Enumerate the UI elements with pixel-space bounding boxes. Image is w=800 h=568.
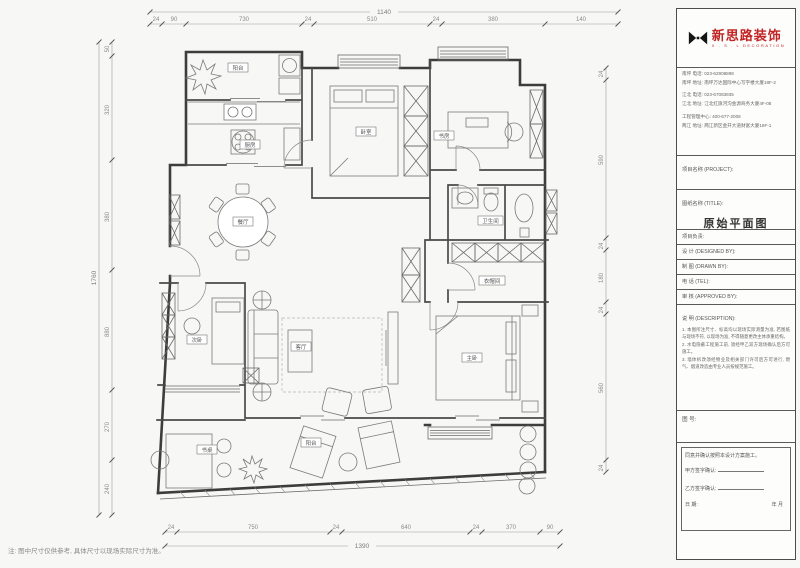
confirmation-section: 同意并确认按照本设计方案施工。 甲方签字确认: 乙方签字确认: 日 期: 年 月 [677,443,795,546]
tel-row: 电 话 (TEL): [677,275,795,290]
sheet-note: 注: 图中尺寸仅供参考, 具体尺寸以现场实际尺寸为准。 [8,545,165,555]
svg-text:90: 90 [171,17,178,23]
drawing-title-label: 图纸名称 (TITLE): [682,201,723,207]
svg-text:240: 240 [105,483,111,494]
lead-row: 项目负责: [677,230,795,245]
party-b-signature: 乙方签字确认: [685,483,787,492]
svg-text:140: 140 [576,17,587,23]
dimensions-right: 24 590 24 180 24 560 24 [599,66,609,475]
svg-text:270: 270 [105,421,111,432]
tag-dining: 餐厅 [233,217,253,226]
svg-text:24: 24 [599,306,605,313]
plant-icon [239,456,267,483]
svg-text:书房: 书房 [438,132,450,140]
svg-text:590: 590 [599,154,605,165]
svg-text:主卧: 主卧 [466,354,478,362]
svg-text:370: 370 [506,525,517,531]
svg-text:640: 640 [401,525,412,531]
description-note: 1. 本图所注尺寸、标高均以现场实际测量为准, 若图纸与现场不符, 以现场为准,… [682,327,790,340]
tag-master: 主卧 [462,353,482,362]
approve-row: 审 核 (APPROVED BY): [677,290,795,305]
ceiling-light-icon [253,291,271,401]
party-a-signature: 甲方签字确认: [685,465,787,474]
contact-section: 南坪 电话: 023-62908898 南坪 地址: 南坪万达国际中心写字楼大厦… [677,68,795,156]
svg-text:客厅: 客厅 [295,343,307,351]
tag-bedroom3: 次卧 [187,335,207,344]
svg-text:560: 560 [599,382,605,393]
contact-line: 南坪 电话: 023-62908898 [682,70,790,79]
dimensions-left: 50 320 380 880 270 240 1760 [91,40,115,518]
svg-text:24: 24 [333,525,340,531]
confirmation-statement: 同意并确认按照本设计方案施工。 [685,452,787,459]
svg-text:书桌: 书桌 [201,446,213,454]
svg-text:次卧: 次卧 [191,336,203,344]
title-block: 新思路装饰 X . S . L DECORATION 南坪 电话: 023-62… [676,8,796,560]
svg-text:24: 24 [305,17,312,23]
svg-text:24: 24 [599,70,605,77]
tag-bath: 卫生间 [478,216,503,225]
svg-text:380: 380 [488,17,499,23]
svg-text:24: 24 [473,525,480,531]
svg-text:24: 24 [433,17,440,23]
tag-balcony-top: 阳台 [228,63,248,72]
svg-text:880: 880 [105,326,111,337]
contact-line: 江北 地址: 江北红旗河沟金源商务大厦4F-08 [682,100,790,109]
svg-text:730: 730 [239,17,250,23]
tag-kitchen: 厨房 [240,140,260,149]
floor-plan: 1140 24 90 730 24 510 24 380 140 24 750 … [0,0,676,568]
description-note: 2. 水电隐蔽工程施工前, 须经甲乙双方现场确认后方可施工。 [682,342,790,355]
svg-text:卫生间: 卫生间 [482,217,499,225]
drawing-title-row: 图纸名称 (TITLE): 原始平面图 [677,190,795,230]
confirmation-box: 同意并确认按照本设计方案施工。 甲方签字确认: 乙方签字确认: 日 期: 年 月 [681,447,791,531]
tag-study: 书房 [434,131,454,140]
svg-text:510: 510 [367,17,378,23]
svg-text:卧室: 卧室 [360,128,372,136]
furniture [151,55,538,494]
interior-walls [157,60,548,420]
tag-living: 客厅 [291,342,311,351]
description-note: 3. 墙体拆改须经物业及相关部门许可后方可进行, 燃气、烟道改造由专业人员按规范… [682,357,790,370]
contact-line: 两江 地址: 两江新区金开大道财富大厦18F-1 [682,122,790,131]
tag-closet: 衣帽间 [479,276,505,285]
svg-text:180: 180 [599,272,605,283]
svg-text:阳台: 阳台 [232,64,244,72]
svg-text:24: 24 [168,525,175,531]
design-row: 设 计 (DESIGNED BY): [677,245,795,260]
svg-text:24: 24 [599,242,605,249]
dimensions-bottom: 24 750 24 640 24 370 90 1390 [163,525,563,550]
contact-line: 江北 电话: 023-67083935 [682,91,790,100]
room-tags: 阳台 厨房 餐厅 卧室 书房 卫生间 衣帽间 主卧 客厅 次卧 阳台 书桌 [187,63,505,454]
tag-balcony-bottom: 阳台 [301,438,321,447]
svg-text:90: 90 [547,525,554,531]
doors [170,140,480,330]
svg-text:24: 24 [153,17,160,23]
project-name-label: 项目名称 (PROJECT): [682,167,733,173]
svg-text:24: 24 [599,464,605,471]
drawing-name: 原始平面图 [682,215,790,231]
svg-text:1140: 1140 [377,9,391,16]
svg-text:餐厅: 餐厅 [237,218,249,226]
project-name-row: 项目名称 (PROJECT): [677,156,795,190]
brand-subtitle: X . S . L DECORATION [712,44,786,48]
date-row: 日 期: 年 月 [685,501,787,508]
brand-logo-icon [687,30,709,46]
drawing-sheet: 1140 24 90 730 24 510 24 380 140 24 750 … [0,0,800,568]
logo-section: 新思路装饰 X . S . L DECORATION [677,9,795,68]
svg-text:衣帽间: 衣帽间 [484,277,501,285]
tag-bedroom2: 卧室 [356,127,376,136]
svg-text:50: 50 [105,45,111,52]
contact-line: 工程管理中心: 400-677-2008 [682,113,790,122]
svg-text:阳台: 阳台 [305,439,317,447]
dimensions-top: 1140 24 90 730 24 510 24 380 140 [148,7,621,27]
svg-text:750: 750 [248,525,259,531]
svg-text:厨房: 厨房 [244,141,256,149]
contact-line: 南坪 地址: 南坪万达国际中心写字楼大厦18F-2 [682,79,790,88]
figure-number-label: 图 号: [682,417,696,423]
draft-row: 制 图 (DRAWN BY): [677,260,795,275]
description-label: 说 明 (DESCRIPTION): [682,316,736,322]
plant-icon [186,60,221,94]
svg-text:1760: 1760 [91,270,98,285]
svg-text:1390: 1390 [355,543,370,550]
tag-desk: 书桌 [197,445,217,454]
figure-number-row: 图 号: [677,411,795,443]
svg-text:380: 380 [105,211,111,222]
brand-name: 新思路装饰 [712,29,786,42]
description-section: 说 明 (DESCRIPTION): 1. 本图所注尺寸、标高均以现场实际测量为… [677,305,795,411]
svg-text:320: 320 [105,104,111,115]
